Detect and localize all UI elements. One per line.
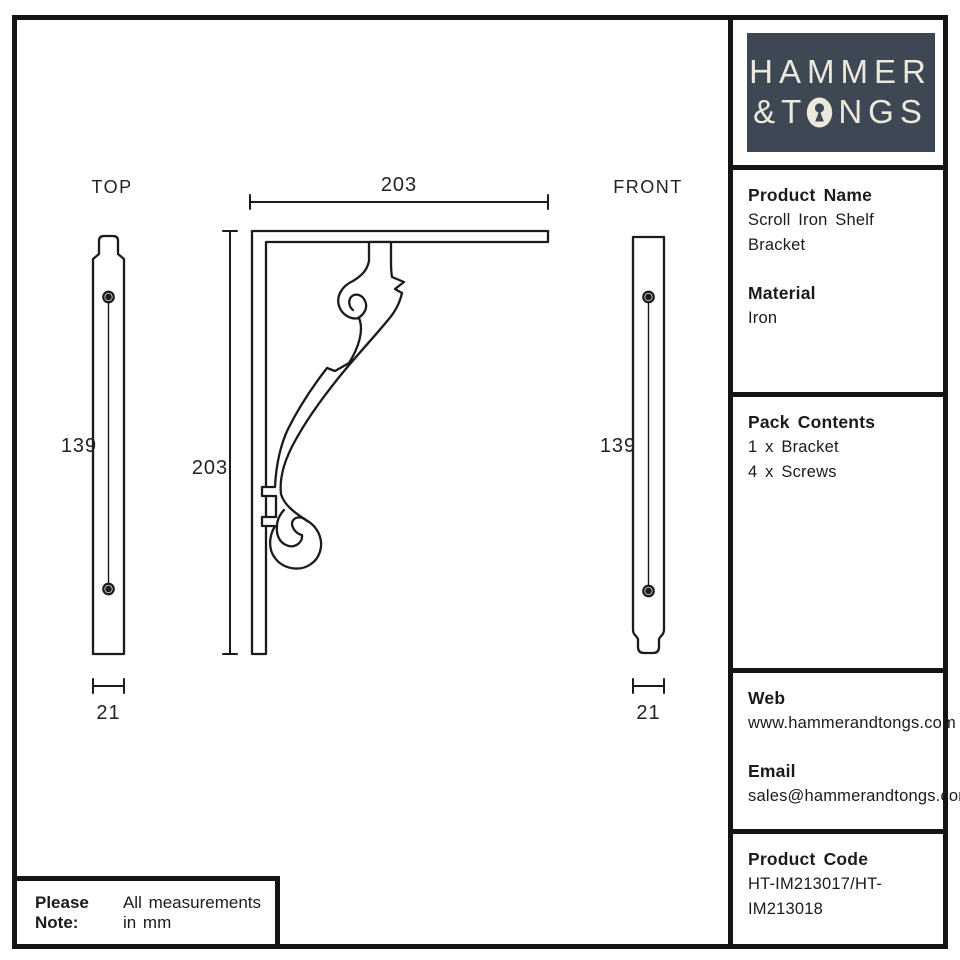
- spec-sheet: TOP FRONT 203 203 139 21 139 21 HAMMER &…: [0, 0, 960, 960]
- front-view-label: FRONT: [613, 177, 683, 197]
- email-value: sales@hammerandtongs.com: [748, 784, 934, 809]
- bracket-side-view: [223, 195, 548, 654]
- brand-word-ngs: NGS: [838, 92, 928, 132]
- brand-word-and-t: &T: [753, 92, 807, 132]
- top-view-height-dim-value: 139: [61, 435, 97, 457]
- note-text: All measurements in mm: [123, 893, 275, 933]
- material-value: Iron: [748, 306, 934, 331]
- pack-contents-label: Pack Contents: [748, 409, 934, 435]
- top-view-hole-upper-center: [106, 295, 110, 299]
- front-view-width-dim-value: 21: [636, 702, 660, 724]
- keyhole-o-icon: [806, 97, 833, 128]
- email-label: Email: [748, 758, 934, 784]
- top-view-label: TOP: [91, 177, 132, 197]
- measurement-note: Please Note: All measurements in mm: [12, 876, 280, 949]
- product-code-cell: Product Code HT-IM213017/HT-IM213018: [733, 834, 948, 944]
- brand-logo-line1: HAMMER: [749, 52, 932, 92]
- front-view-hole-upper-center: [646, 295, 650, 299]
- front-view: [633, 237, 664, 693]
- brand-logo-line2: &T NGS: [753, 92, 928, 132]
- product-code-label: Product Code: [748, 846, 934, 872]
- brand-word-hammer: HAMMER: [749, 52, 932, 92]
- material-label: Material: [748, 280, 934, 306]
- web-label: Web: [748, 685, 934, 711]
- bracket-scroll: [262, 242, 404, 569]
- pack-item: 4 x Screws: [748, 460, 934, 485]
- top-view: [93, 236, 124, 693]
- technical-drawing: TOP FRONT 203 203 139 21 139 21: [0, 0, 728, 960]
- bracket-width-dim-value: 203: [381, 174, 417, 196]
- info-sidebar: HAMMER &T NGS Product Name Scr: [728, 20, 948, 944]
- product-code-value: HT-IM213017/HT-IM213018: [748, 872, 934, 922]
- bracket-height-dim-value: 203: [192, 457, 228, 479]
- brand-logo-cell: HAMMER &T NGS: [733, 20, 948, 170]
- brand-logo: HAMMER &T NGS: [747, 33, 935, 152]
- front-view-height-dim-value: 139: [600, 435, 636, 457]
- pack-contents-cell: Pack Contents 1 x Bracket 4 x Screws: [733, 397, 948, 673]
- web-value: www.hammerandtongs.com: [748, 711, 934, 736]
- product-name-value: Scroll Iron Shelf Bracket: [748, 208, 934, 258]
- note-label: Please Note:: [35, 893, 117, 933]
- pack-item: 1 x Bracket: [748, 435, 934, 460]
- top-view-width-dim-value: 21: [96, 702, 120, 724]
- product-name-label: Product Name: [748, 182, 934, 208]
- product-info-cell: Product Name Scroll Iron Shelf Bracket M…: [733, 170, 948, 398]
- contact-cell: Web www.hammerandtongs.com Email sales@h…: [733, 673, 948, 834]
- front-view-hole-lower-center: [646, 589, 650, 593]
- top-view-hole-lower-center: [106, 587, 110, 591]
